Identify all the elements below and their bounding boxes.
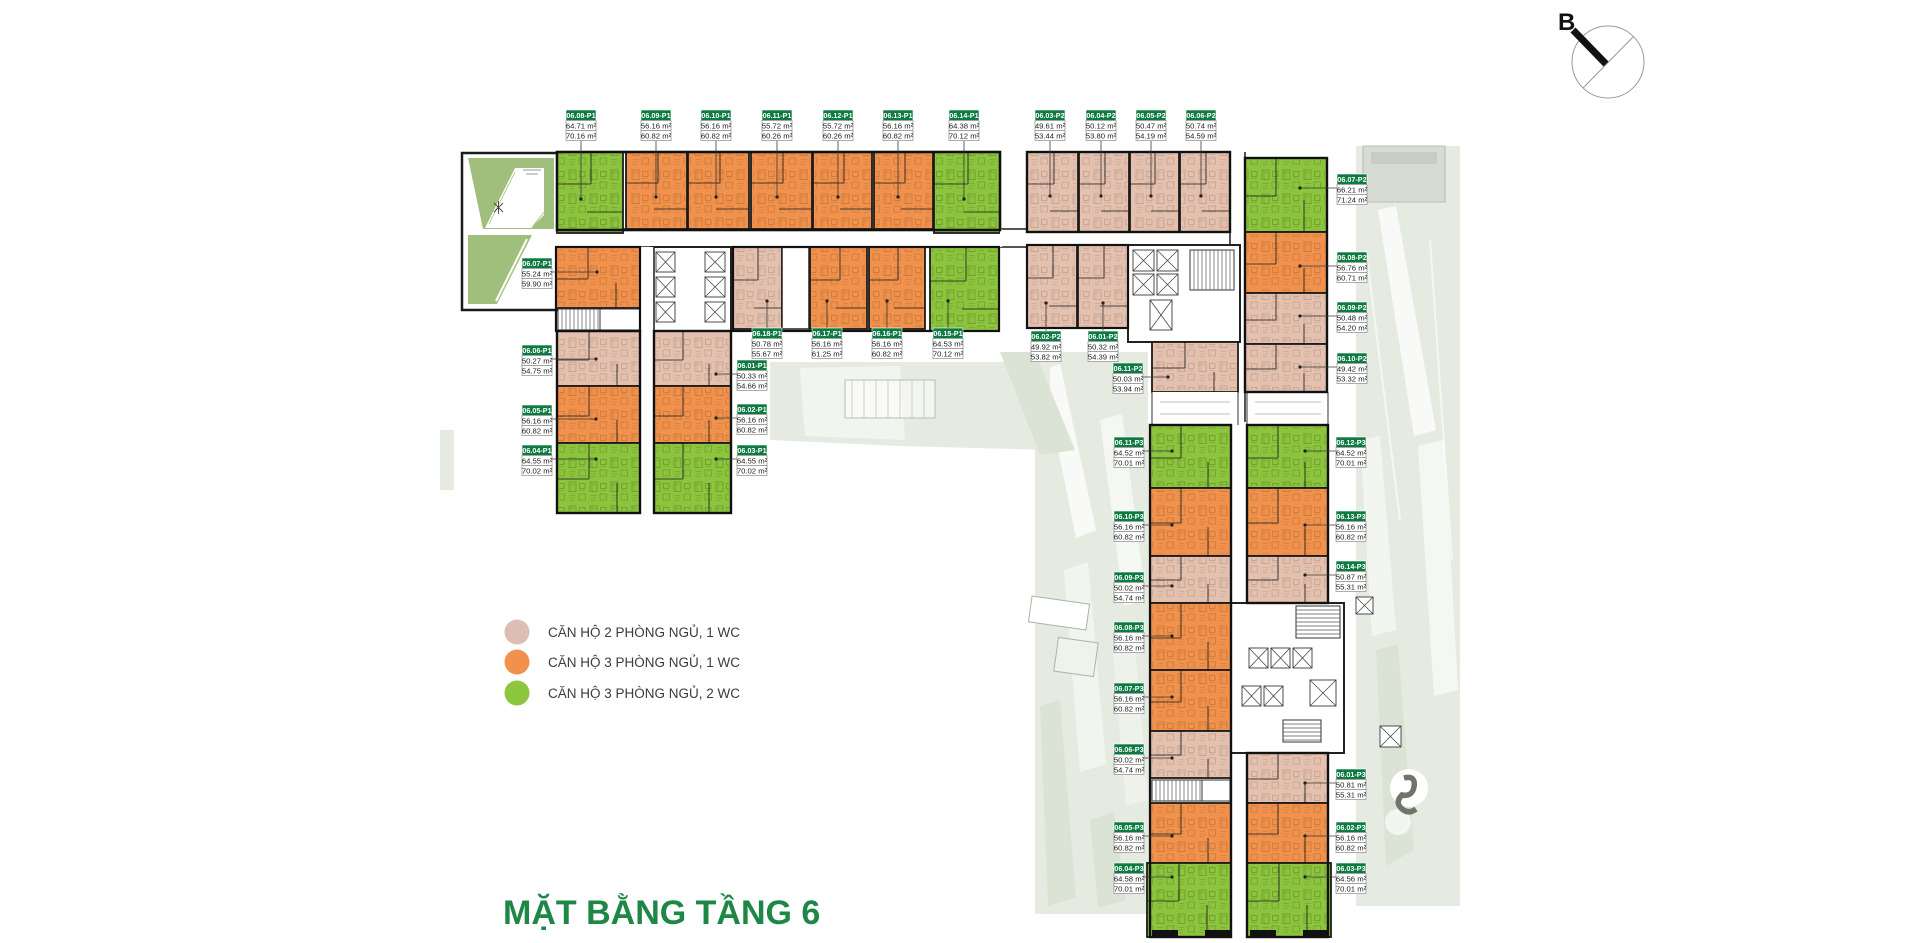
svg-text:06.07-P1: 06.07-P1 xyxy=(522,259,551,268)
svg-text:50.02 m²: 50.02 m² xyxy=(1114,755,1145,764)
svg-text:50.12 m²: 50.12 m² xyxy=(1086,121,1117,130)
svg-text:06.05-P2: 06.05-P2 xyxy=(1136,111,1165,120)
svg-text:06.13-P3: 06.13-P3 xyxy=(1336,512,1365,521)
svg-text:70.01 m²: 70.01 m² xyxy=(1336,884,1367,893)
svg-text:54.74 m²: 54.74 m² xyxy=(1114,593,1145,602)
svg-text:53.94 m²: 53.94 m² xyxy=(1113,384,1144,393)
svg-text:06.11-P1: 06.11-P1 xyxy=(763,111,792,120)
svg-text:50.48 m²: 50.48 m² xyxy=(1337,313,1368,322)
svg-text:06.08-P1: 06.08-P1 xyxy=(566,111,595,120)
svg-text:06.13-P1: 06.13-P1 xyxy=(883,111,912,120)
svg-text:06.10-P2: 06.10-P2 xyxy=(1337,354,1366,363)
svg-text:70.01 m²: 70.01 m² xyxy=(1114,458,1145,467)
svg-text:61.25 m²: 61.25 m² xyxy=(812,349,843,358)
svg-text:60.82 m²: 60.82 m² xyxy=(522,426,553,435)
svg-text:56.16 m²: 56.16 m² xyxy=(737,415,768,424)
svg-text:56.16 m²: 56.16 m² xyxy=(1114,694,1145,703)
svg-text:06.03-P3: 06.03-P3 xyxy=(1336,864,1365,873)
svg-text:CĂN HỘ 3 PHÒNG NGỦ, 2 WC: CĂN HỘ 3 PHÒNG NGỦ, 2 WC xyxy=(548,686,740,701)
svg-text:64.52 m²: 64.52 m² xyxy=(1114,448,1145,457)
svg-text:56.16 m²: 56.16 m² xyxy=(1114,833,1145,842)
svg-text:60.82 m²: 60.82 m² xyxy=(1114,643,1145,652)
svg-text:55.67 m²: 55.67 m² xyxy=(752,349,783,358)
svg-text:53.82 m²: 53.82 m² xyxy=(1031,352,1062,361)
svg-text:49.92 m²: 49.92 m² xyxy=(1031,342,1062,351)
svg-text:60.82 m²: 60.82 m² xyxy=(1114,704,1145,713)
svg-text:06.05-P1: 06.05-P1 xyxy=(522,406,551,415)
svg-text:06.17-P1: 06.17-P1 xyxy=(812,329,841,338)
svg-text:54.75 m²: 54.75 m² xyxy=(522,366,553,375)
svg-text:56.16 m²: 56.16 m² xyxy=(1336,833,1367,842)
svg-text:60.82 m²: 60.82 m² xyxy=(701,131,732,140)
svg-text:56.16 m²: 56.16 m² xyxy=(1114,522,1145,531)
svg-text:70.02 m²: 70.02 m² xyxy=(522,466,553,475)
svg-text:06.02-P2: 06.02-P2 xyxy=(1031,332,1060,341)
svg-text:06.10-P3: 06.10-P3 xyxy=(1114,512,1143,521)
svg-text:53.44 m²: 53.44 m² xyxy=(1035,131,1066,140)
svg-text:70.16 m²: 70.16 m² xyxy=(566,131,597,140)
svg-text:49.61 m²: 49.61 m² xyxy=(1035,121,1066,130)
svg-text:50.81 m²: 50.81 m² xyxy=(1336,780,1367,789)
svg-text:56.16 m²: 56.16 m² xyxy=(1114,633,1145,642)
svg-text:55.31 m²: 55.31 m² xyxy=(1336,790,1367,799)
svg-text:06.11-P2: 06.11-P2 xyxy=(1114,364,1143,373)
svg-text:06.09-P3: 06.09-P3 xyxy=(1114,573,1143,582)
svg-text:70.12 m²: 70.12 m² xyxy=(933,349,964,358)
svg-text:54.74 m²: 54.74 m² xyxy=(1114,765,1145,774)
svg-text:CĂN HỘ 3 PHÒNG NGỦ, 1 WC: CĂN HỘ 3 PHÒNG NGỦ, 1 WC xyxy=(548,655,740,670)
svg-text:06.05-P3: 06.05-P3 xyxy=(1114,823,1143,832)
svg-text:53.80 m²: 53.80 m² xyxy=(1086,131,1117,140)
svg-text:64.52 m²: 64.52 m² xyxy=(1336,448,1367,457)
svg-text:06.12-P3: 06.12-P3 xyxy=(1336,438,1365,447)
svg-text:50.74 m²: 50.74 m² xyxy=(1186,121,1217,130)
svg-text:06.11-P3: 06.11-P3 xyxy=(1115,438,1144,447)
svg-text:70.02 m²: 70.02 m² xyxy=(737,466,768,475)
svg-text:56.16 m²: 56.16 m² xyxy=(872,339,903,348)
svg-text:60.82 m²: 60.82 m² xyxy=(872,349,903,358)
svg-text:06.06-P3: 06.06-P3 xyxy=(1114,745,1143,754)
svg-text:56.76 m²: 56.76 m² xyxy=(1337,263,1368,272)
svg-text:06.06-P2: 06.06-P2 xyxy=(1186,111,1215,120)
svg-text:56.16 m²: 56.16 m² xyxy=(701,121,732,130)
svg-text:64.58 m²: 64.58 m² xyxy=(1114,874,1145,883)
svg-text:60.82 m²: 60.82 m² xyxy=(1336,843,1367,852)
svg-text:06.09-P2: 06.09-P2 xyxy=(1337,303,1366,312)
svg-text:49.42 m²: 49.42 m² xyxy=(1337,364,1368,373)
svg-text:06.08-P2: 06.08-P2 xyxy=(1337,253,1366,262)
svg-text:60.82 m²: 60.82 m² xyxy=(737,425,768,434)
svg-text:06.15-P1: 06.15-P1 xyxy=(933,329,962,338)
svg-text:59.90 m²: 59.90 m² xyxy=(522,279,553,288)
svg-text:06.01-P2: 06.01-P2 xyxy=(1088,332,1117,341)
svg-text:CĂN HỘ 2 PHÒNG NGỦ, 1 WC: CĂN HỘ 2 PHÒNG NGỦ, 1 WC xyxy=(548,625,740,640)
svg-text:71.24 m²: 71.24 m² xyxy=(1337,195,1368,204)
svg-text:06.02-P3: 06.02-P3 xyxy=(1336,823,1365,832)
svg-text:06.12-P1: 06.12-P1 xyxy=(823,111,852,120)
svg-text:06.03-P2: 06.03-P2 xyxy=(1035,111,1064,120)
svg-text:06.01-P1: 06.01-P1 xyxy=(737,361,766,370)
svg-text:06.04-P1: 06.04-P1 xyxy=(522,446,551,455)
svg-text:06.08-P3: 06.08-P3 xyxy=(1114,623,1143,632)
svg-text:06.07-P2: 06.07-P2 xyxy=(1337,175,1366,184)
svg-text:60.82 m²: 60.82 m² xyxy=(641,131,672,140)
svg-text:64.56 m²: 64.56 m² xyxy=(1336,874,1367,883)
svg-text:06.06-P1: 06.06-P1 xyxy=(522,346,551,355)
svg-text:64.53 m²: 64.53 m² xyxy=(933,339,964,348)
svg-text:60.71 m²: 60.71 m² xyxy=(1337,273,1368,282)
svg-text:60.82 m²: 60.82 m² xyxy=(1114,843,1145,852)
svg-text:50.87 m²: 50.87 m² xyxy=(1336,572,1367,581)
svg-text:56.16 m²: 56.16 m² xyxy=(883,121,914,130)
svg-text:54.20 m²: 54.20 m² xyxy=(1337,323,1368,332)
svg-text:60.82 m²: 60.82 m² xyxy=(883,131,914,140)
svg-text:60.82 m²: 60.82 m² xyxy=(1336,532,1367,541)
svg-text:70.01 m²: 70.01 m² xyxy=(1336,458,1367,467)
svg-text:50.02 m²: 50.02 m² xyxy=(1114,583,1145,592)
svg-text:55.72 m²: 55.72 m² xyxy=(762,121,793,130)
svg-text:06.02-P1: 06.02-P1 xyxy=(737,405,766,414)
svg-text:64.55 m²: 64.55 m² xyxy=(522,456,553,465)
svg-text:56.16 m²: 56.16 m² xyxy=(641,121,672,130)
svg-text:06.09-P1: 06.09-P1 xyxy=(641,111,670,120)
svg-text:66.21 m²: 66.21 m² xyxy=(1337,185,1368,194)
svg-text:60.26 m²: 60.26 m² xyxy=(762,131,793,140)
svg-text:MẶT BẰNG TẦNG 6: MẶT BẰNG TẦNG 6 xyxy=(503,894,820,932)
svg-text:56.16 m²: 56.16 m² xyxy=(522,416,553,425)
svg-text:64.71 m²: 64.71 m² xyxy=(566,121,597,130)
svg-text:06.03-P1: 06.03-P1 xyxy=(737,446,766,455)
svg-text:50.32 m²: 50.32 m² xyxy=(1088,342,1119,351)
svg-text:60.82 m²: 60.82 m² xyxy=(1114,532,1145,541)
svg-text:54.66 m²: 54.66 m² xyxy=(737,381,768,390)
svg-text:54.39 m²: 54.39 m² xyxy=(1088,352,1119,361)
svg-text:55.24 m²: 55.24 m² xyxy=(522,269,553,278)
svg-text:54.59 m²: 54.59 m² xyxy=(1186,131,1217,140)
svg-text:06.14-P3: 06.14-P3 xyxy=(1336,562,1365,571)
svg-text:06.10-P1: 06.10-P1 xyxy=(701,111,730,120)
svg-text:56.16 m²: 56.16 m² xyxy=(812,339,843,348)
svg-text:06.04-P2: 06.04-P2 xyxy=(1086,111,1115,120)
svg-text:64.55 m²: 64.55 m² xyxy=(737,456,768,465)
svg-text:06.16-P1: 06.16-P1 xyxy=(872,329,901,338)
svg-text:50.33 m²: 50.33 m² xyxy=(737,371,768,380)
svg-text:54.19 m²: 54.19 m² xyxy=(1136,131,1167,140)
svg-text:70.01 m²: 70.01 m² xyxy=(1114,884,1145,893)
svg-text:53.32 m²: 53.32 m² xyxy=(1337,374,1368,383)
svg-text:70.12 m²: 70.12 m² xyxy=(949,131,980,140)
svg-text:56.16 m²: 56.16 m² xyxy=(1336,522,1367,531)
svg-text:50.27 m²: 50.27 m² xyxy=(522,356,553,365)
svg-text:06.14-P1: 06.14-P1 xyxy=(949,111,978,120)
svg-text:06.18-P1: 06.18-P1 xyxy=(752,329,781,338)
svg-text:55.31 m²: 55.31 m² xyxy=(1336,582,1367,591)
svg-text:55.72 m²: 55.72 m² xyxy=(823,121,854,130)
svg-text:64.38 m²: 64.38 m² xyxy=(949,121,980,130)
svg-text:06.07-P3: 06.07-P3 xyxy=(1114,684,1143,693)
svg-text:60.26 m²: 60.26 m² xyxy=(823,131,854,140)
svg-text:50.47 m²: 50.47 m² xyxy=(1136,121,1167,130)
svg-text:06.01-P3: 06.01-P3 xyxy=(1336,770,1365,779)
svg-text:50.78 m²: 50.78 m² xyxy=(752,339,783,348)
svg-text:50.03 m²: 50.03 m² xyxy=(1113,374,1144,383)
svg-text:06.04-P3: 06.04-P3 xyxy=(1114,864,1143,873)
